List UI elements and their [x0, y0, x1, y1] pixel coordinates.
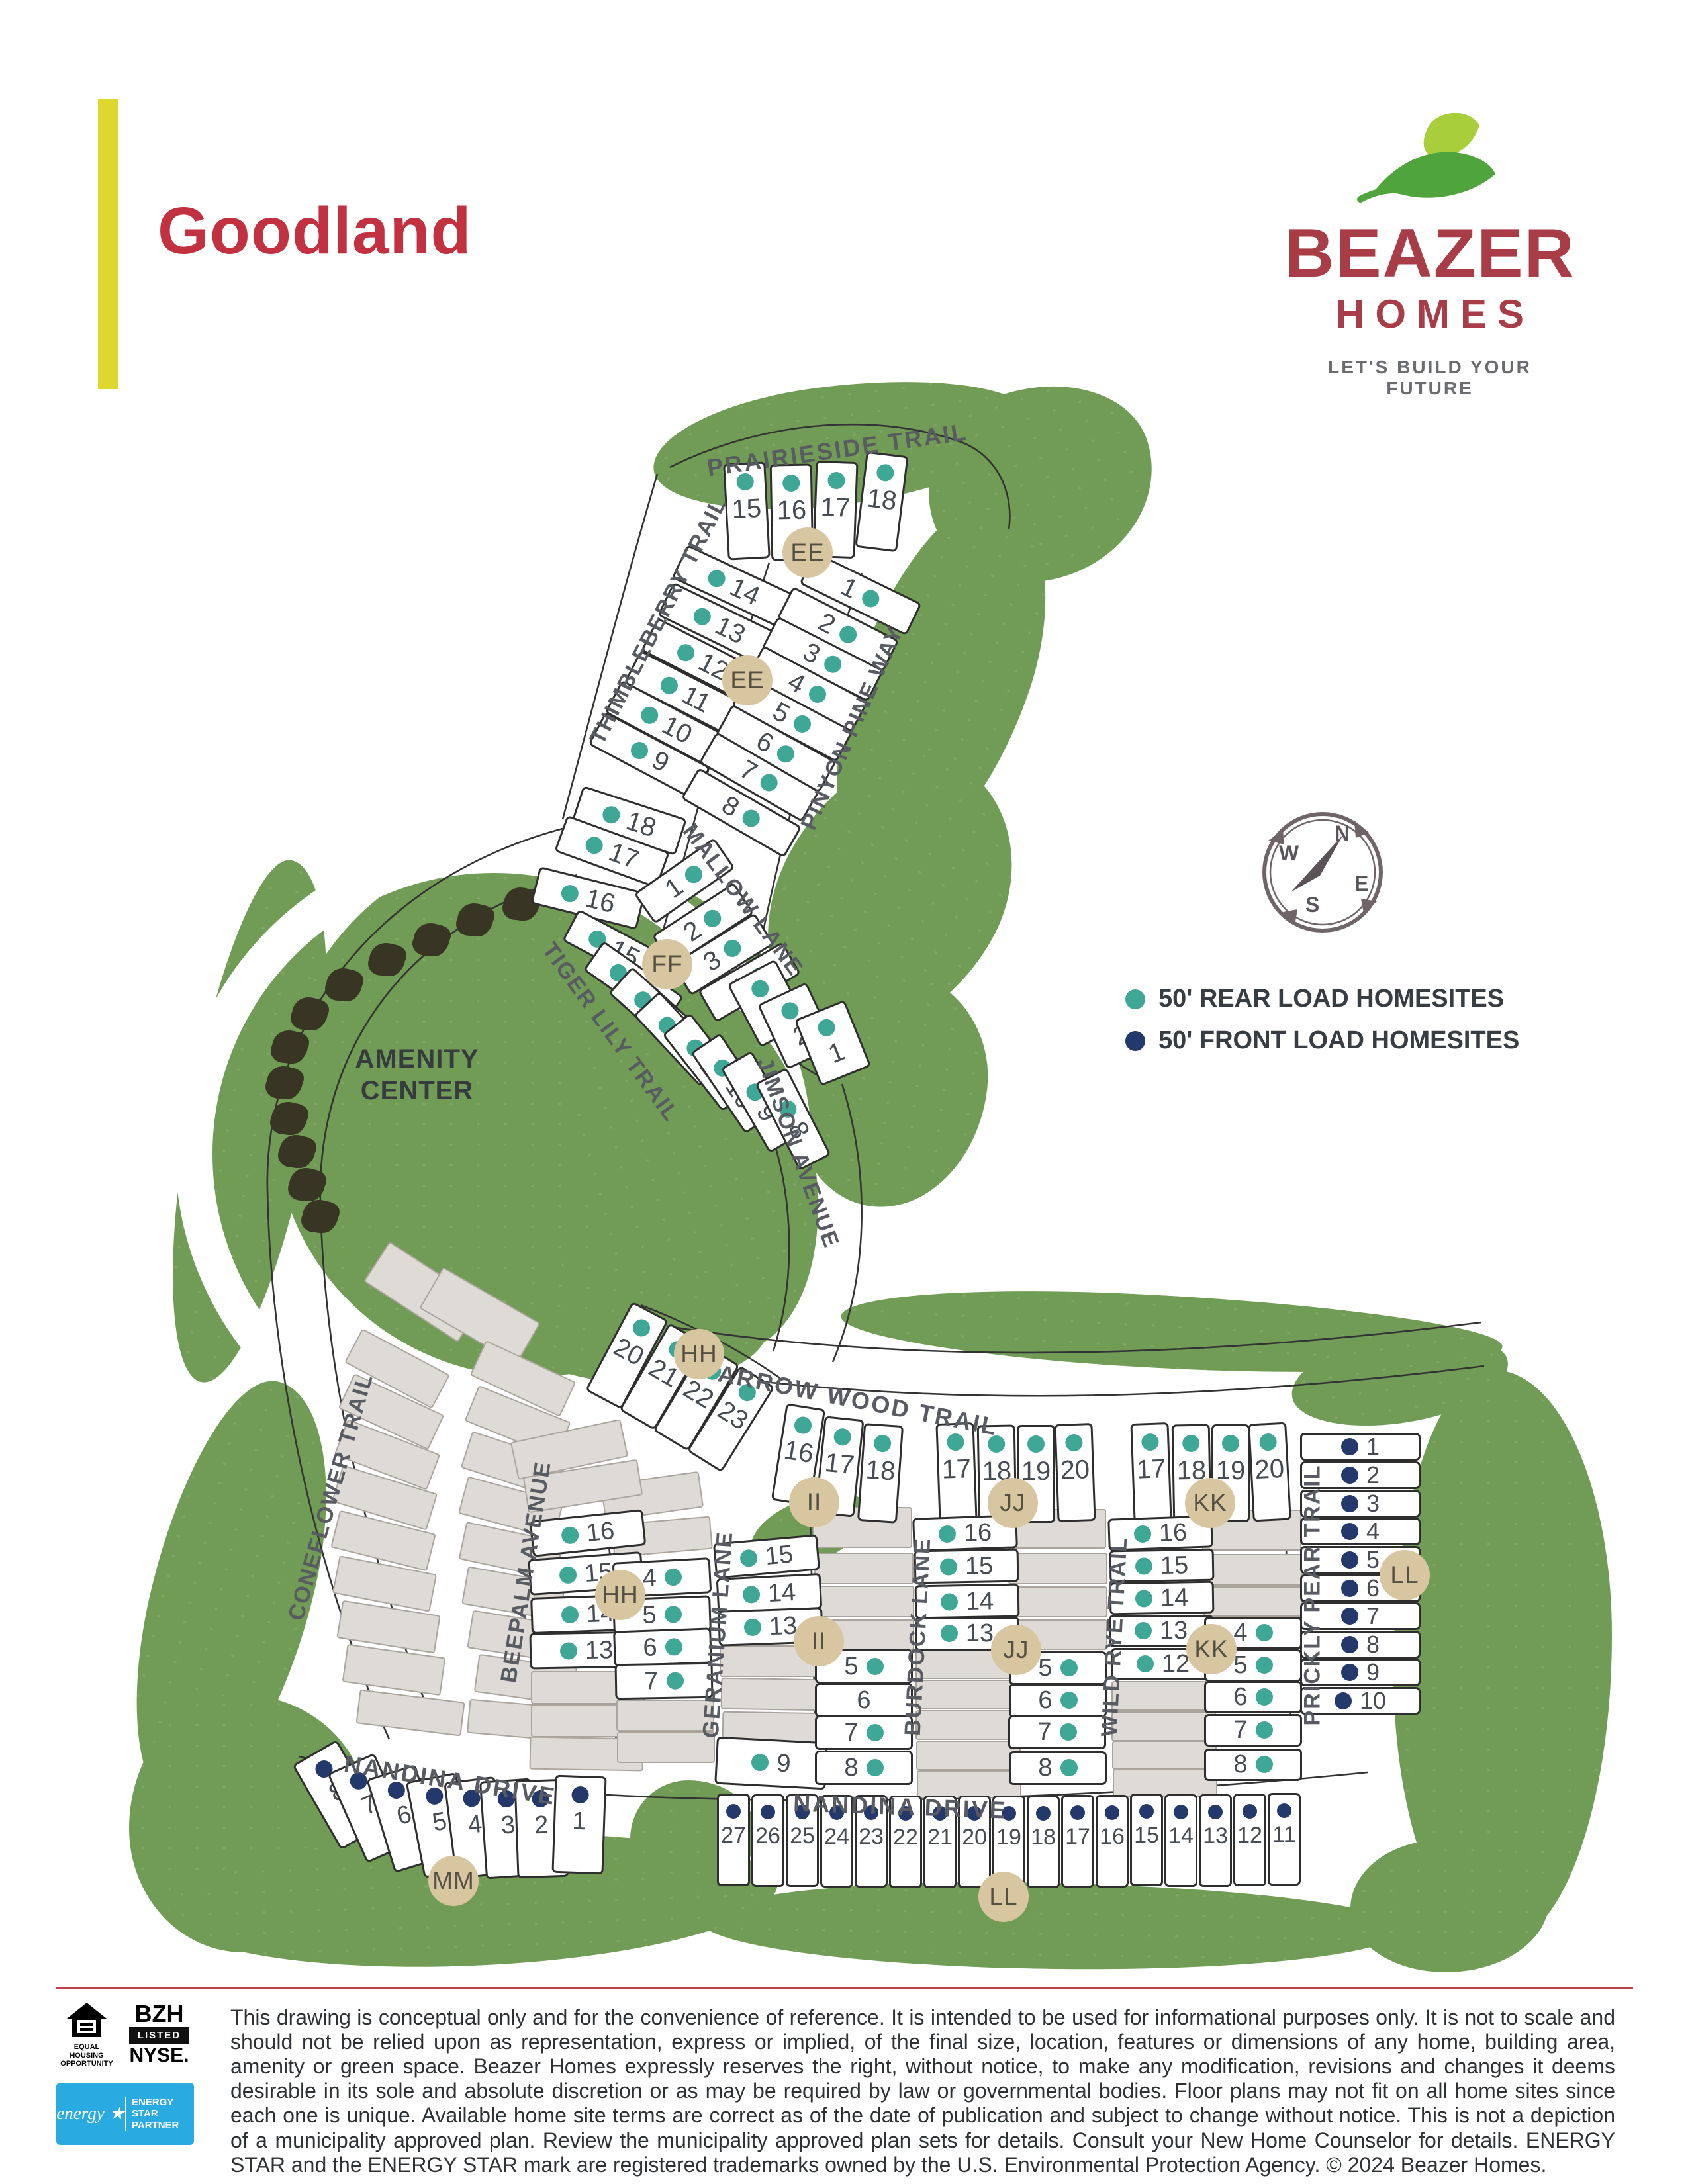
rear-load-dot-icon — [867, 1658, 884, 1675]
lot-burdock-west-col-8: 8 — [815, 1751, 913, 1785]
lot-number: 1 — [825, 1038, 849, 1068]
rear-load-dot-icon — [938, 1525, 956, 1543]
lot-number: 11 — [1272, 1823, 1295, 1846]
lot-number: 1 — [661, 873, 688, 903]
lot-number: 8 — [1038, 1755, 1052, 1780]
lot-number: 2 — [534, 1813, 549, 1839]
front-load-dot-icon — [1036, 1806, 1051, 1821]
rear-load-dot-icon — [700, 907, 724, 931]
lot-number: 5 — [642, 1602, 657, 1628]
lot-number: 6 — [752, 727, 778, 758]
intersection-badge-HH: HH — [595, 1570, 645, 1620]
lot-number: 8 — [1233, 1752, 1247, 1777]
rear-load-dot-icon — [1125, 989, 1145, 1009]
lot-number: 19 — [1021, 1458, 1051, 1484]
front-load-dot-icon — [571, 1786, 589, 1804]
rear-load-dot-icon — [867, 1759, 884, 1776]
footer-divider — [56, 1987, 1633, 1989]
lot-number: 18 — [866, 484, 898, 514]
lot-number: 9 — [776, 1751, 791, 1776]
rear-load-dot-icon — [1135, 1557, 1152, 1574]
rear-load-dot-icon — [833, 1428, 852, 1447]
rear-load-dot-icon — [816, 1017, 838, 1039]
rear-load-dot-icon — [674, 641, 697, 664]
unreleased-lot — [1111, 1681, 1216, 1711]
lot-number: 2 — [679, 917, 706, 947]
lot-number: 14 — [1160, 1584, 1189, 1610]
legend-row-rear: 50' REAR LOAD HOMESITES — [1125, 985, 1519, 1013]
lot-prickly-west-col-7: 7 — [1204, 1714, 1302, 1747]
lot-prickly-pear-east-col-1: 1 — [1300, 1433, 1421, 1461]
rear-load-dot-icon — [664, 1568, 682, 1586]
lot-number: 4 — [467, 1811, 484, 1838]
lot-number: 22 — [893, 1826, 918, 1848]
lot-number: 16 — [776, 497, 806, 524]
lot-number: 7 — [644, 1668, 659, 1694]
intersection-badge-KK: KK — [1186, 1624, 1237, 1674]
lot-number: 5 — [430, 1808, 449, 1835]
lot-number: 9 — [1366, 1661, 1380, 1684]
lot-number: 17 — [820, 494, 851, 522]
lot-number: 15 — [965, 1553, 994, 1578]
lot-number: 1 — [1366, 1435, 1380, 1459]
lot-number: 3 — [500, 1812, 516, 1838]
lot-prickly-west-col-8: 8 — [1204, 1749, 1302, 1781]
lot-wildrye-west-col-8: 8 — [1009, 1751, 1107, 1785]
lot-number: 1 — [572, 1809, 586, 1835]
lot-number: 12 — [1162, 1651, 1190, 1676]
intersection-badge-LL: LL — [978, 1872, 1029, 1922]
rear-load-dot-icon — [1256, 1756, 1273, 1773]
rear-load-dot-icon — [1182, 1435, 1199, 1452]
legend-row-front: 50' FRONT LOAD HOMESITES — [1125, 1026, 1519, 1055]
lot-number: 6 — [643, 1635, 657, 1661]
lot-burdock-west-col-7: 7 — [815, 1715, 913, 1750]
rear-load-dot-icon — [600, 804, 622, 826]
lot-number: 5 — [769, 698, 794, 728]
unreleased-lot — [355, 1689, 465, 1736]
intersection-badge-JJ: JJ — [988, 1478, 1038, 1528]
lot-nandina-right-row-17: 17 — [1061, 1795, 1094, 1888]
lot-nandina-right-row-18: 18 — [1027, 1796, 1060, 1888]
lot-nandina-right-row-27: 27 — [717, 1794, 750, 1886]
lot-number: 7 — [1366, 1604, 1380, 1628]
lot-number: 25 — [790, 1825, 815, 1847]
lot-number: 20 — [1254, 1455, 1286, 1483]
lot-number: 3 — [799, 639, 824, 669]
rear-load-dot-icon — [821, 653, 845, 676]
rear-load-dot-icon — [1060, 1692, 1078, 1709]
rear-load-dot-icon — [947, 1433, 964, 1451]
front-load-dot-icon — [1341, 1438, 1358, 1455]
lot-number: 23 — [859, 1825, 884, 1848]
rear-load-dot-icon — [859, 587, 882, 610]
svg-text:N: N — [1335, 821, 1350, 845]
lot-number: 6 — [1366, 1576, 1380, 1600]
lot-nandina-right-row-11: 11 — [1268, 1793, 1301, 1886]
rear-load-dot-icon — [1027, 1435, 1045, 1453]
front-load-dot-icon — [1341, 1580, 1358, 1597]
equal-housing-house-icon — [67, 2003, 107, 2040]
intersection-badge-KK: KK — [1185, 1478, 1235, 1528]
rear-load-dot-icon — [1141, 1433, 1159, 1451]
lot-number: 8 — [1366, 1633, 1380, 1657]
lot-arrowwood-block3-17: 17 — [1130, 1422, 1172, 1522]
rear-load-dot-icon — [876, 463, 895, 482]
lot-number: 18 — [623, 807, 659, 842]
intersection-badge-II: II — [794, 1616, 844, 1666]
lot-number: 2 — [814, 609, 839, 639]
lot-nandina-right-row-26: 26 — [751, 1794, 784, 1887]
nyse-listed-logo: BZH LISTED NYSE. — [129, 2003, 189, 2066]
unreleased-lot — [1203, 1554, 1303, 1586]
lot-number: 3 — [1366, 1492, 1380, 1516]
lot-number: 17 — [823, 1449, 855, 1479]
intersection-badge-FF: FF — [642, 939, 692, 989]
rear-load-dot-icon — [1060, 1659, 1078, 1676]
front-load-dot-icon — [1341, 1608, 1358, 1625]
lot-number: 7 — [1233, 1717, 1247, 1743]
lot-burdock-west-col-6: 6 — [815, 1683, 913, 1717]
lot-number: 16 — [1100, 1825, 1125, 1848]
lot-number: 4 — [1366, 1520, 1380, 1543]
lot-number: 14 — [726, 574, 764, 610]
intersection-badge-LL: LL — [1380, 1550, 1430, 1600]
rear-load-dot-icon — [665, 1638, 682, 1656]
lot-number: 7 — [735, 756, 761, 786]
rear-load-dot-icon — [666, 1672, 683, 1689]
svg-text:E: E — [1354, 872, 1368, 895]
front-load-dot-icon — [1341, 1664, 1358, 1681]
unreleased-lot — [916, 1741, 1021, 1770]
lot-number: 5 — [1038, 1655, 1052, 1680]
lot-number: 8 — [718, 792, 743, 822]
legend-label: 50' REAR LOAD HOMESITES — [1158, 985, 1504, 1013]
site-map: 1516171814131211109123456781817161514131… — [0, 0, 1688, 2184]
front-load-dot-icon — [1243, 1804, 1257, 1819]
front-load-dot-icon — [1341, 1467, 1358, 1484]
rear-load-dot-icon — [630, 1316, 653, 1340]
rear-load-dot-icon — [1222, 1435, 1239, 1452]
unreleased-lot — [1008, 1553, 1107, 1584]
front-load-dot-icon — [1139, 1804, 1154, 1819]
rear-load-dot-icon — [774, 743, 797, 766]
lot-number: 10 — [1360, 1689, 1386, 1713]
lot-geranium-lot9-9: 9 — [714, 1737, 828, 1790]
rear-load-dot-icon — [690, 605, 714, 628]
rear-load-dot-icon — [1135, 1622, 1152, 1639]
lot-number: 21 — [927, 1826, 953, 1848]
unreleased-lot — [1113, 1769, 1217, 1797]
rear-load-dot-icon — [664, 1606, 682, 1623]
unreleased-lot — [1008, 1586, 1107, 1617]
unreleased-lot — [721, 1678, 826, 1711]
unreleased-lot — [915, 1680, 1020, 1709]
lot-number: 18 — [865, 1457, 896, 1485]
lot-number: 4 — [1233, 1620, 1247, 1645]
lot-number: 13 — [585, 1637, 614, 1662]
lot-nandina-right-row-12: 12 — [1233, 1794, 1266, 1886]
lot-number: 13 — [711, 612, 749, 649]
intersection-badge-MM: MM — [428, 1856, 479, 1906]
rear-load-dot-icon — [739, 807, 763, 831]
lot-number: 14 — [767, 1580, 796, 1606]
lot-number: 5 — [844, 1654, 858, 1679]
lot-number: 6 — [857, 1688, 870, 1713]
lot-number: 16 — [585, 1518, 616, 1545]
lot-number: 17 — [1136, 1455, 1166, 1483]
intersection-badge-EE: EE — [722, 655, 773, 705]
rear-load-dot-icon — [1256, 1624, 1273, 1641]
unreleased-lot — [1111, 1711, 1216, 1741]
lot-wildrye-west-col-6: 6 — [1009, 1684, 1107, 1717]
rear-load-dot-icon — [1065, 1434, 1083, 1452]
front-load-dot-icon — [1335, 1692, 1352, 1709]
unreleased-lot — [915, 1710, 1020, 1740]
lot-number: 13 — [1160, 1618, 1188, 1643]
rear-load-dot-icon — [739, 1549, 758, 1567]
lot-number: 16 — [963, 1520, 992, 1545]
rear-load-dot-icon — [749, 977, 772, 1000]
intersection-badge-II: II — [789, 1477, 839, 1527]
lot-number: 20 — [1060, 1456, 1090, 1484]
intersection-badge-JJ: JJ — [991, 1625, 1041, 1675]
lot-nandina-right-row-14: 14 — [1164, 1794, 1197, 1887]
lot-number: 1 — [837, 573, 862, 604]
lot-nandina-right-row-15: 15 — [1130, 1794, 1163, 1886]
front-load-dot-icon — [1174, 1805, 1188, 1819]
lot-number: 27 — [721, 1824, 746, 1846]
front-load-dot-icon — [1341, 1636, 1358, 1653]
lot-nandina-right-row-16: 16 — [1096, 1795, 1129, 1888]
lot-number: 20 — [962, 1826, 987, 1848]
lot-arrowwood-block1-18: 18 — [857, 1423, 904, 1524]
lot-number: 12 — [1237, 1824, 1262, 1846]
rear-load-dot-icon — [1256, 1721, 1273, 1739]
unreleased-lot — [1112, 1741, 1217, 1770]
lot-number: 20 — [610, 1334, 648, 1371]
front-load-dot-icon — [726, 1804, 741, 1819]
lot-number: 3 — [699, 946, 726, 976]
intersection-badge-EE: EE — [782, 527, 833, 578]
legend: 50' REAR LOAD HOMESITES 50' FRONT LOAD H… — [1125, 985, 1519, 1068]
rear-load-dot-icon — [827, 472, 845, 490]
lot-number: 17 — [941, 1455, 972, 1483]
lot-number: 7 — [844, 1720, 858, 1745]
lot-number: 19 — [996, 1826, 1021, 1848]
lot-geranium-west-col-7: 7 — [615, 1662, 714, 1700]
intersection-badge-HH: HH — [674, 1329, 724, 1379]
lot-number: 16 — [583, 885, 618, 918]
rear-load-dot-icon — [1135, 1589, 1152, 1606]
rear-load-dot-icon — [1060, 1723, 1077, 1741]
rear-load-dot-icon — [658, 674, 681, 697]
rear-load-dot-icon — [1137, 1655, 1154, 1672]
lot-arrowwood-block2-17: 17 — [935, 1422, 977, 1522]
footer-logos: EQUAL HOUSING OPPORTUNITY BZH LISTED NYS… — [56, 2003, 209, 2145]
lot-number: 6 — [1038, 1688, 1052, 1713]
lot-number: 6 — [1233, 1684, 1247, 1709]
rear-load-dot-icon — [561, 1525, 580, 1545]
lot-wildrye-west-col-7: 7 — [1008, 1715, 1106, 1749]
lot-number: 22 — [679, 1375, 718, 1413]
lot-nandina-right-row-13: 13 — [1199, 1794, 1232, 1887]
rear-load-dot-icon — [941, 1625, 958, 1642]
amenity-center-label: AMENITY CENTER — [355, 1043, 479, 1107]
lot-arrowwood-block2-20: 20 — [1054, 1423, 1096, 1522]
lot-number: 14 — [1168, 1825, 1194, 1847]
energy-star-logo: energy ★ ENERGY STAR PARTNER — [56, 2083, 194, 2145]
lot-number: 26 — [755, 1825, 780, 1847]
rear-load-dot-icon — [743, 1619, 761, 1637]
rear-load-dot-icon — [1256, 1657, 1273, 1674]
rear-load-dot-icon — [1256, 1688, 1273, 1706]
rear-load-dot-icon — [782, 475, 800, 492]
lot-number: 8 — [844, 1755, 858, 1780]
front-load-dot-icon — [1070, 1805, 1085, 1820]
rear-load-dot-icon — [1259, 1433, 1277, 1451]
lot-number: 2 — [1366, 1463, 1380, 1487]
front-load-dot-icon — [1105, 1805, 1119, 1820]
front-load-dot-icon — [1208, 1805, 1223, 1819]
lot-number: 7 — [1037, 1719, 1051, 1745]
lot-number: 15 — [764, 1542, 794, 1570]
rear-load-dot-icon — [793, 1416, 813, 1435]
rear-load-dot-icon — [1060, 1759, 1078, 1776]
lot-number: 15 — [731, 495, 763, 523]
rear-load-dot-icon — [561, 1606, 579, 1623]
lot-arrowwood-block3-20: 20 — [1248, 1422, 1291, 1522]
rear-load-dot-icon — [583, 835, 605, 856]
lot-number: 15 — [1134, 1824, 1159, 1846]
front-load-dot-icon — [1341, 1551, 1358, 1569]
lot-number: 16 — [1158, 1520, 1188, 1545]
svg-text:W: W — [1279, 841, 1299, 865]
green-space — [1350, 1840, 1549, 1972]
rear-load-dot-icon — [1133, 1525, 1151, 1543]
lot-geranium-west-col-6: 6 — [613, 1627, 712, 1666]
lot-number: 17 — [605, 839, 641, 874]
unreleased-lot — [814, 1553, 914, 1584]
street-label-prickly-pear-trail: PRICKLY PEAR TRAIL — [1300, 1465, 1326, 1726]
lot-number: 13 — [769, 1614, 798, 1639]
rear-load-dot-icon — [637, 704, 661, 727]
compass-icon: N W S E — [1256, 806, 1389, 942]
lot-number: 5 — [1233, 1653, 1247, 1678]
lot-number: 15 — [1160, 1552, 1189, 1578]
disclaimer-text: This drawing is conceptual only and for … — [230, 2005, 1615, 2177]
rear-load-dot-icon — [867, 1724, 884, 1741]
unreleased-lot — [815, 1586, 914, 1617]
rear-load-dot-icon — [757, 771, 781, 795]
rear-load-dot-icon — [559, 883, 581, 904]
rear-load-dot-icon — [559, 1565, 577, 1584]
green-space — [701, 1877, 1404, 1975]
front-load-dot-icon — [1277, 1803, 1291, 1818]
lot-number: 24 — [824, 1825, 849, 1848]
rear-load-dot-icon — [940, 1557, 957, 1574]
front-load-dot-icon — [1125, 1031, 1145, 1051]
rear-load-dot-icon — [751, 1753, 769, 1771]
rear-load-dot-icon — [837, 623, 860, 646]
lot-number: 13 — [1203, 1825, 1228, 1847]
rear-load-dot-icon — [560, 1641, 577, 1659]
svg-text:S: S — [1305, 893, 1319, 917]
front-load-dot-icon — [1341, 1495, 1358, 1512]
lot-number: 5 — [1366, 1548, 1380, 1572]
unreleased-lot — [1203, 1586, 1303, 1617]
rear-load-dot-icon — [791, 712, 814, 735]
lot-nandina-left-row-1: 1 — [551, 1775, 606, 1875]
lot-number: 18 — [1031, 1826, 1056, 1848]
legend-label: 50' FRONT LOAD HOMESITES — [1158, 1026, 1519, 1055]
rear-load-dot-icon — [941, 1592, 958, 1610]
rear-load-dot-icon — [742, 1586, 760, 1604]
lot-number: 16 — [782, 1437, 816, 1467]
lot-number: 13 — [966, 1621, 994, 1646]
rear-load-dot-icon — [806, 682, 829, 705]
front-load-dot-icon — [1341, 1523, 1358, 1540]
front-load-dot-icon — [761, 1805, 775, 1819]
lot-number: 14 — [966, 1588, 994, 1614]
lot-number: 17 — [1065, 1825, 1090, 1848]
rear-load-dot-icon — [705, 567, 728, 590]
site-plan-page: Goodland BEAZER HOMES LET'S BUILD YOUR F… — [0, 0, 1688, 2184]
lot-number: 4 — [784, 668, 809, 698]
rear-load-dot-icon — [873, 1434, 892, 1453]
rear-load-dot-icon — [628, 739, 651, 762]
rear-load-dot-icon — [721, 936, 745, 960]
lot-prickly-west-col-6: 6 — [1204, 1681, 1302, 1713]
lot-number: 23 — [714, 1396, 753, 1435]
equal-housing-logo: EQUAL HOUSING OPPORTUNITY — [56, 2003, 117, 2068]
lot-number: 9 — [648, 747, 673, 777]
